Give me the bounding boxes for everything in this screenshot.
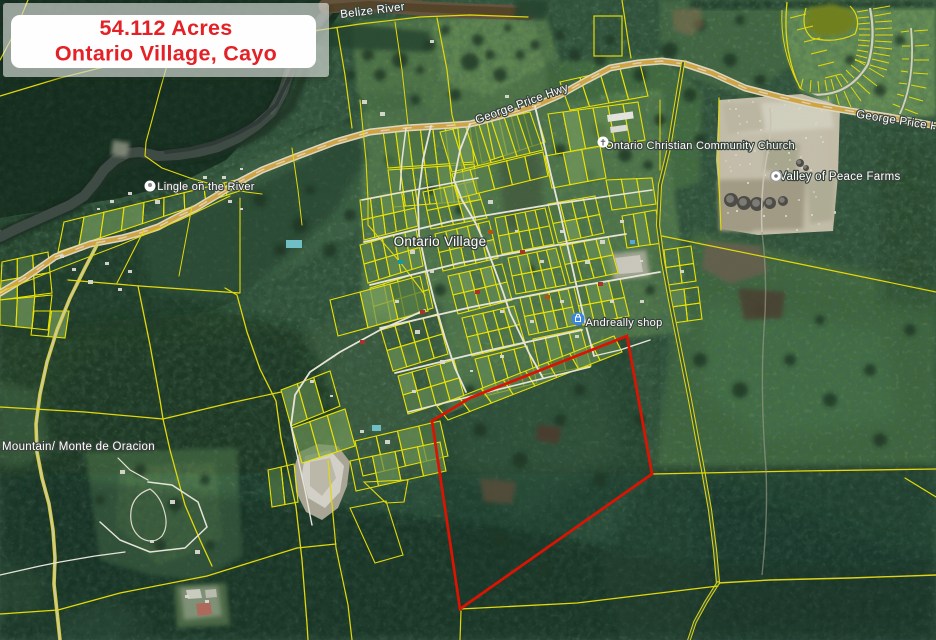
svg-text:Andreally shop: Andreally shop	[586, 317, 663, 329]
svg-text:Mountain/ Monte de Oracion: Mountain/ Monte de Oracion	[2, 441, 155, 453]
svg-text:Ontario Village, Cayo: Ontario Village, Cayo	[55, 42, 277, 66]
svg-text:54.112 Acres: 54.112 Acres	[99, 16, 232, 40]
svg-text:Lingle on the River: Lingle on the River	[157, 181, 254, 193]
svg-text:✝: ✝	[599, 138, 607, 148]
svg-text:Ontario Village: Ontario Village	[394, 234, 487, 249]
svg-text:Valley of Peace Farms: Valley of Peace Farms	[779, 171, 900, 183]
svg-text:Ontario Christian Community Ch: Ontario Christian Community Church	[605, 140, 795, 152]
